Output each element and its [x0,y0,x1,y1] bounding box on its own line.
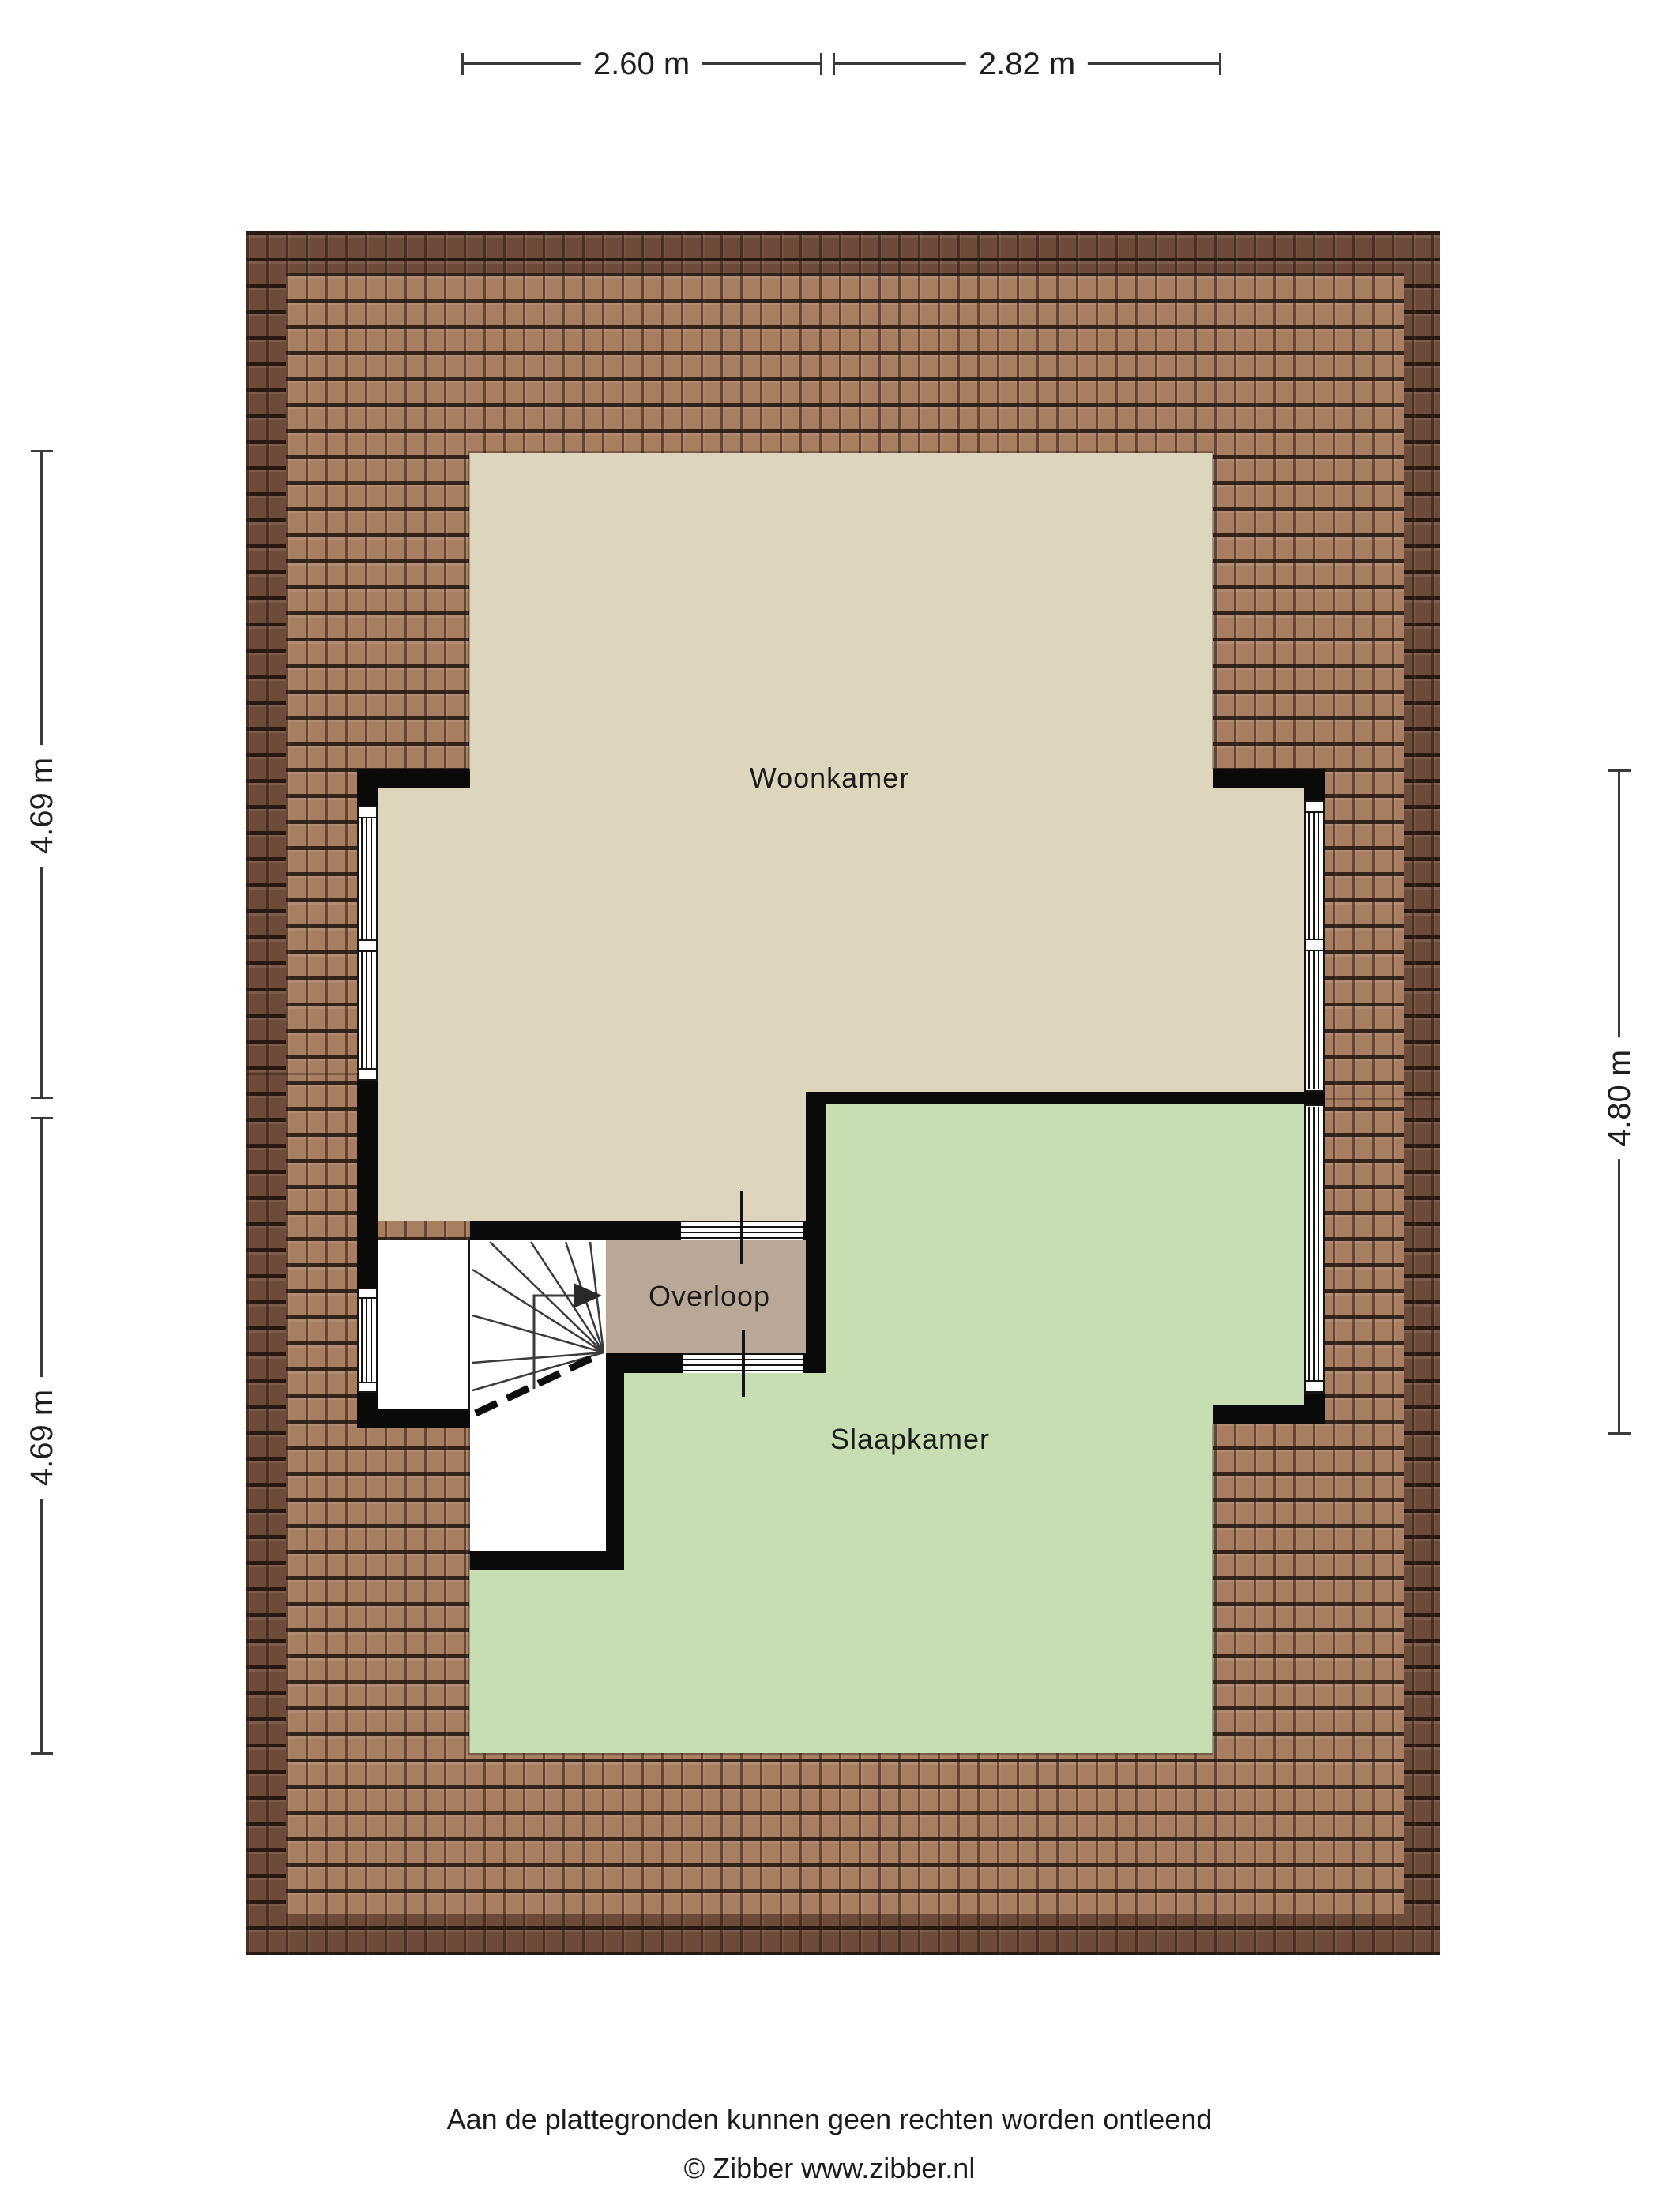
dimension-label-left-1: 4.69 m [23,745,61,867]
dimension-label-right: 4.80 m [1601,1037,1638,1159]
window-cap [1304,800,1325,813]
wall-interior-divider [806,1092,1325,1104]
wall-segment [1213,769,1325,788]
staircase-area [470,1240,606,1551]
wall-segment [802,1353,826,1373]
wall-overloop-top [470,1221,681,1240]
dimension-tick [833,53,835,75]
dimension-label-top-2: 2.82 m [966,45,1088,83]
dimension-tick [820,53,822,75]
floorplan-page: { "plan": { "rooms": [ {"id": "woonkamer… [0,0,1659,2212]
window-cap [357,1382,378,1393]
dimension-tick [1219,53,1221,75]
dormer-edge-left-upper [468,453,470,769]
window-cap [357,1068,378,1081]
dimension-tick [31,450,53,452]
window-glazing [361,1290,374,1390]
wall-segment [357,1081,378,1288]
wall-segment [1304,788,1325,801]
room-slaapkamer-left [624,1373,826,1570]
dormer-edge-left-lower [468,1428,470,1753]
dimension-tick [31,1097,53,1099]
window-glazing [1308,1107,1321,1392]
footer-credit: © Zibber www.zibber.nl [0,2152,1659,2185]
room-woonkamer-dormer [469,453,1213,788]
dormer-edge-bottom [468,1753,1213,1755]
wall-overloop-bottom [606,1353,683,1373]
opening-marker [742,1330,745,1397]
window-mullion [357,939,378,952]
window-cap [357,806,378,818]
dimension-tick [1608,1432,1631,1435]
window-mullion [1304,939,1325,951]
footer-disclaimer: Aan de plattegronden kunnen geen rechten… [0,2103,1659,2136]
dormer-edge-right-upper [1212,453,1213,769]
wall-segment [357,1409,470,1428]
room-label-overloop: Overloop [649,1280,770,1313]
dimension-tick [461,53,464,75]
wall-stairs-bottom [470,1551,624,1570]
room-label-slaapkamer: Slaapkamer [830,1423,990,1456]
dimension-tick [31,1752,53,1755]
wall-stairs-right [606,1373,624,1570]
window-right-lower [1304,1104,1325,1394]
wall-closet-divider [468,1240,470,1410]
window-cap [1304,1380,1325,1393]
opening-marker [740,1191,743,1264]
wall-segment [1213,1405,1325,1424]
closet-area [378,1240,468,1410]
room-label-woonkamer: Woonkamer [750,762,909,795]
dormer-edge-right-lower [1212,1424,1213,1753]
roof-plane-seam-right [1325,1098,1440,1100]
roof-plane-seam-left [246,1073,357,1075]
dormer-edge-top [468,451,1213,453]
room-slaapkamer-upper [826,1104,1306,1405]
wall-segment [357,769,378,806]
dimension-tick [1608,769,1631,772]
dimension-label-left-2: 4.69 m [23,1377,61,1499]
window-left-lower [357,1288,378,1393]
window-cap [357,1288,378,1299]
room-slaapkamer-dormer [469,1570,1213,1753]
dimension-tick [31,1117,53,1119]
wall-segment [802,1221,826,1240]
dimension-label-top-1: 2.60 m [581,45,702,83]
room-woonkamer-main [378,788,1306,1098]
